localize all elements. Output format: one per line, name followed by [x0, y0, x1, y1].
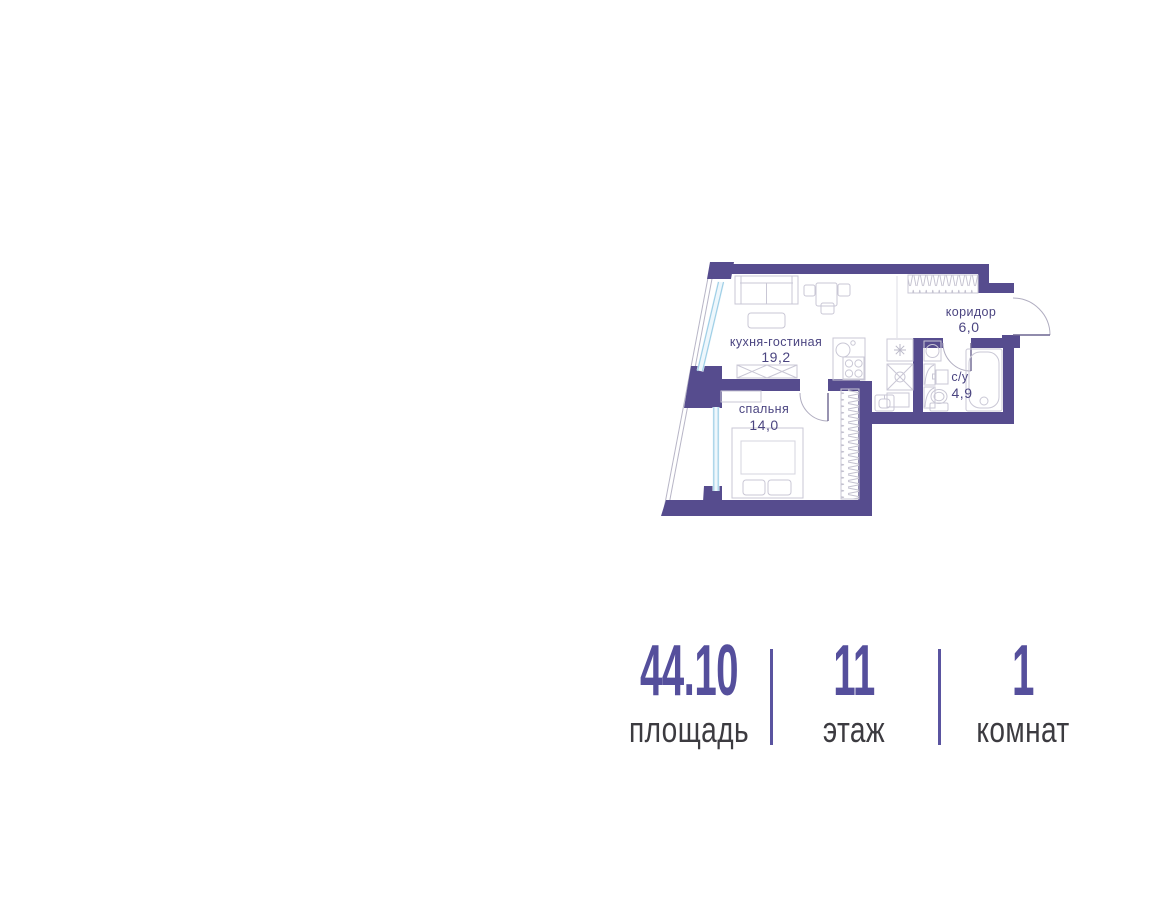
room-label-corridor: коридор [946, 305, 997, 319]
room-area-living: 19,2 [761, 349, 790, 365]
pillow [743, 480, 765, 495]
stove [843, 357, 864, 379]
fridge [887, 339, 913, 361]
bedroom-wardrobe [841, 389, 859, 499]
wall-bedroom-top-left [718, 379, 800, 391]
kitchen-sink [836, 343, 850, 357]
sofa [735, 276, 798, 304]
mini-sink [875, 395, 894, 411]
dining-table-set [804, 283, 850, 314]
wall-top [727, 264, 989, 274]
chair [838, 284, 850, 296]
wall-bottom [661, 500, 872, 516]
room-area-bedroom: 14,0 [749, 417, 778, 433]
wall-entry-step [978, 283, 1014, 293]
chair [804, 285, 815, 296]
bedroom-door-arc [800, 393, 828, 421]
bed [732, 428, 803, 498]
wall-bath-left [913, 338, 923, 424]
bathroom-door-arc [943, 343, 971, 371]
corridor-wardrobe [908, 275, 978, 293]
entry-door-arc [1013, 298, 1050, 335]
wall-bedroom-right [858, 381, 872, 516]
kitchen-faucet [851, 341, 855, 345]
coffee-table [748, 313, 785, 328]
bathroom-door [943, 343, 971, 371]
bathtub-drain [980, 397, 988, 405]
floor-plan: кухня-гостиная 19,2 спальня 14,0 коридор… [0, 0, 1152, 907]
chair [821, 303, 834, 314]
wall-bottom-right-section [858, 412, 1014, 424]
room-area-bathroom: 4,9 [952, 385, 973, 401]
wall-bath-top-right [971, 338, 1013, 348]
tv-console [737, 365, 797, 378]
entry-door [1013, 298, 1050, 335]
room-label-bedroom: спальня [739, 402, 789, 416]
washing-machine [887, 364, 913, 390]
living-room-window [698, 282, 724, 371]
room-label-living: кухня-гостиная [730, 335, 822, 349]
room-label-bathroom: с/у [951, 370, 969, 384]
kitchen-counter [833, 338, 865, 380]
bedroom-door [800, 393, 828, 421]
room-area-corridor: 6,0 [959, 319, 980, 335]
pillow [768, 480, 791, 495]
bedroom-window [714, 407, 718, 491]
dresser [721, 391, 761, 402]
